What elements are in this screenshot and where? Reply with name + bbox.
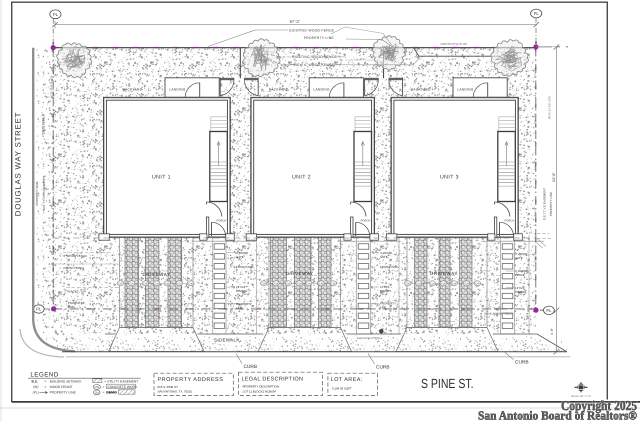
svg-text:CW: CW — [154, 282, 159, 285]
svg-text:NEW 6’ WOOD FENCE: NEW 6’ WOOD FENCE — [294, 63, 334, 67]
svg-text:CW: CW — [406, 282, 411, 285]
svg-text:PL: PL — [546, 308, 552, 313]
svg-text:PAVERS: PAVERS — [380, 289, 391, 293]
svg-text:CW: CW — [143, 282, 148, 285]
svg-text:LOT 11 BLOCK1 NCB654: LOT 11 BLOCK1 NCB654 — [243, 389, 277, 393]
svg-text:GATE: GATE — [380, 255, 388, 259]
svg-text:62’-8”: 62’-8” — [552, 172, 556, 182]
svg-text:G.E.T.T.V.E EASEMENT: G.E.T.T.V.E EASEMENT — [543, 188, 547, 221]
svg-text:97’-3”: 97’-3” — [290, 19, 301, 24]
svg-text:DRIVEWAY: DRIVEWAY — [286, 271, 314, 276]
svg-text:CW: CW — [274, 282, 279, 285]
svg-text:PL: PL — [53, 12, 59, 17]
svg-text:CW: CW — [452, 282, 457, 285]
svg-text:CW: CW — [262, 282, 267, 285]
svg-text:6’ WOOD FENCE: 6’ WOOD FENCE — [64, 254, 88, 258]
svg-text:DOUGLAS WAY STREET: DOUGLAS WAY STREET — [14, 112, 23, 216]
svg-text:CW: CW — [441, 282, 446, 285]
svg-text:B.S.: B.S. — [32, 379, 38, 383]
svg-text:815 S. PINE ST: 815 S. PINE ST — [158, 385, 179, 389]
svg-text:CW: CW — [319, 282, 324, 285]
svg-text:PAVERS: PAVERS — [515, 290, 526, 294]
svg-text:LANDING: LANDING — [169, 87, 185, 91]
svg-text:CW: CW — [475, 282, 480, 285]
svg-text:LEGEND: LEGEND — [30, 371, 58, 378]
svg-text:PAVERS: PAVERS — [236, 289, 247, 293]
svg-text:CW: CW — [165, 282, 170, 285]
svg-text:CURB: CURB — [244, 364, 258, 370]
svg-text:LANDING: LANDING — [457, 87, 473, 91]
svg-text:(W): (W) — [33, 385, 38, 389]
svg-text:EXISTING WOOD FENCE: EXISTING WOOD FENCE — [292, 55, 337, 59]
svg-text:CW: CW — [307, 282, 312, 285]
svg-text:=: = — [103, 385, 105, 389]
svg-text:(PL): (PL) — [33, 391, 39, 395]
svg-text:FENCE: FENCE — [515, 273, 525, 277]
svg-text:FRONTYARD: FRONTYARD — [236, 265, 254, 269]
svg-text:G.E.T.T.V.E EASEMENT: G.E.T.T.V.E EASEMENT — [42, 177, 46, 210]
svg-text:GATE: GATE — [515, 256, 523, 260]
svg-text:=: = — [44, 379, 46, 383]
svg-text:PL: PL — [534, 11, 540, 16]
svg-text:PORCH: PORCH — [504, 219, 514, 222]
svg-text:FRONTYARD: FRONTYARD — [380, 265, 398, 269]
svg-text:PROPERTY LINE: PROPERTY LINE — [35, 182, 39, 206]
svg-text:CW: CW — [331, 282, 336, 285]
svg-text:=: = — [103, 391, 105, 395]
svg-text:PL: PL — [36, 307, 42, 312]
svg-text:EXISTING WOOD FENCE: EXISTING WOOD FENCE — [289, 28, 334, 32]
svg-text:=: = — [44, 385, 46, 389]
svg-text:S PINE ST.: S PINE ST. — [421, 376, 474, 391]
svg-text:PORCH: PORCH — [216, 219, 226, 222]
svg-text:CURB: CURB — [515, 360, 529, 366]
svg-text:LOT AREA:: LOT AREA: — [331, 377, 363, 383]
svg-text:CURB: CURB — [376, 365, 390, 371]
svg-text:CW: CW — [417, 282, 422, 285]
svg-text:BACKYARD: BACKYARD — [411, 87, 431, 91]
svg-text:= UTILITY EASEMENT: = UTILITY EASEMENT — [104, 379, 138, 383]
svg-text:N22°40’44”E 53.00’: N22°40’44”E 53.00’ — [547, 96, 550, 120]
svg-text:CW: CW — [177, 282, 182, 285]
svg-text:FRONTYARD: FRONTYARD — [64, 266, 83, 270]
svg-text:DRIVEWAY: DRIVEWAY — [143, 272, 171, 277]
svg-text:UNIT 3: UNIT 3 — [440, 174, 459, 180]
svg-text:UNIT 1: UNIT 1 — [152, 174, 171, 180]
svg-text:SIDEWALK: SIDEWALK — [214, 338, 240, 343]
svg-text:UNIT 2: UNIT 2 — [292, 174, 311, 180]
svg-text:CW: CW — [464, 282, 469, 285]
svg-text:LANDING: LANDING — [314, 87, 330, 91]
svg-text:WOOD FENCE: WOOD FENCE — [50, 385, 74, 389]
svg-text:CW: CW — [286, 282, 291, 285]
svg-text:PROPERTY LINE: PROPERTY LINE — [304, 36, 335, 40]
svg-text:CONCRETE WORK: CONCRETE WORK — [108, 385, 138, 389]
svg-text:GATE: GATE — [236, 255, 244, 259]
svg-text:BACKYARD: BACKYARD — [269, 87, 289, 91]
svg-text:S22°40’44”W 53.00’: S22°40’44”W 53.00’ — [49, 75, 52, 99]
svg-text:CW: CW — [430, 282, 435, 285]
svg-text:DEMO: DEMO — [106, 391, 117, 395]
svg-text:(D)(2) LIVEOAK TREES: (D)(2) LIVEOAK TREES — [484, 312, 512, 315]
svg-text:TRACKS, TYP: TRACKS, TYP — [67, 289, 87, 293]
svg-text:5,194.35 SQFT: 5,194.35 SQFT — [332, 387, 352, 391]
svg-text:LINE: LINE — [380, 305, 386, 309]
svg-text:9’-8”: 9’-8” — [550, 328, 554, 334]
svg-text:San Antonio Board of Realtors®: San Antonio Board of Realtors® — [478, 408, 637, 421]
svg-text:LEGAL DESCRIPTION: LEGAL DESCRIPTION — [242, 376, 304, 382]
svg-text:ELEC./UTILITY POLE: ELEC./UTILITY POLE — [357, 337, 383, 340]
svg-text:CW: CW — [297, 282, 302, 285]
svg-text:CW: CW — [188, 282, 193, 285]
svg-text:SIDEWALK: SIDEWALK — [41, 113, 45, 135]
svg-text:CW: CW — [118, 282, 123, 285]
svg-text:LINE: LINE — [236, 306, 242, 310]
svg-text:LINE: LINE — [68, 305, 75, 309]
svg-text:PROPERTY ADDRESS: PROPERTY ADDRESS — [158, 377, 224, 383]
svg-text:(D): (D) — [95, 392, 99, 395]
svg-text:PROPERTY DESCRIPTION:: PROPERTY DESCRIPTION: — [243, 385, 280, 389]
svg-text:SAN ANTONIO, TX. 78210: SAN ANTONIO, TX. 78210 — [158, 390, 193, 394]
svg-text:PORCH: PORCH — [361, 219, 371, 222]
svg-text:PROPERTY LINE: PROPERTY LINE — [549, 192, 553, 216]
svg-text:N22°23’43”W 97.00’: N22°23’43”W 97.00’ — [441, 42, 468, 46]
svg-text:PROPERTY LINE: PROPERTY LINE — [50, 391, 77, 395]
svg-text:DRIVEWAY: DRIVEWAY — [430, 271, 458, 276]
svg-text:CW: CW — [95, 386, 100, 389]
svg-text:BUILDING SETBACK: BUILDING SETBACK — [50, 379, 83, 383]
svg-text:CW: CW — [130, 282, 135, 285]
svg-text:BACKYARD: BACKYARD — [123, 87, 143, 91]
